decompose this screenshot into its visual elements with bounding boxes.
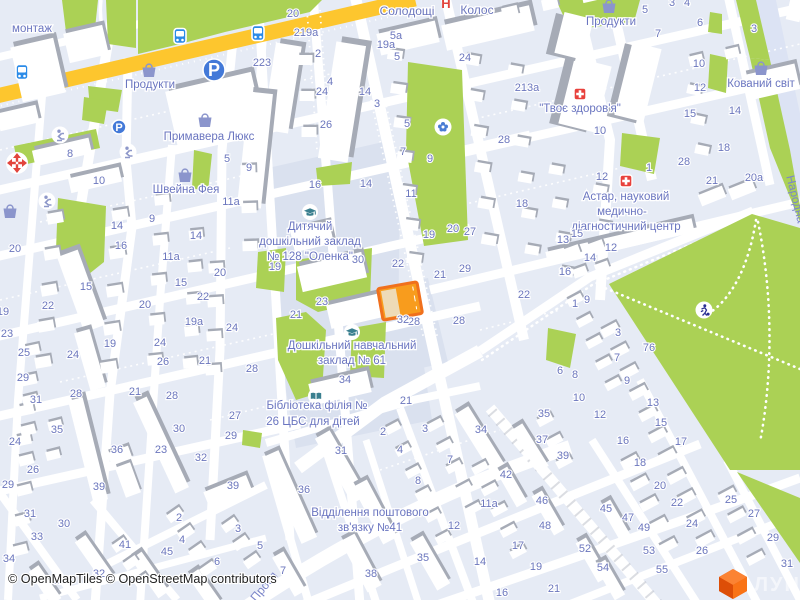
svg-text:медично-: медично- [597, 206, 647, 218]
svg-text:15: 15 [655, 417, 667, 429]
svg-text:20: 20 [9, 243, 21, 255]
svg-text:52: 52 [579, 543, 591, 555]
svg-text:24: 24 [9, 436, 21, 448]
svg-text:9: 9 [624, 375, 630, 387]
svg-text:12: 12 [694, 82, 706, 94]
svg-text:27: 27 [748, 508, 760, 520]
svg-text:9: 9 [149, 213, 155, 225]
svg-text:12: 12 [448, 520, 460, 532]
svg-text:3: 3 [374, 98, 380, 110]
svg-text:30: 30 [58, 518, 70, 530]
svg-text:"Твоє здоров'я": "Твоє здоров'я" [539, 103, 621, 115]
svg-text:76: 76 [643, 342, 655, 354]
svg-text:20: 20 [139, 299, 151, 311]
svg-text:4: 4 [179, 534, 185, 546]
svg-text:23: 23 [1, 328, 13, 340]
svg-text:35: 35 [417, 552, 429, 564]
svg-text:22: 22 [42, 300, 54, 312]
svg-text:24: 24 [686, 518, 698, 530]
svg-text:6: 6 [697, 17, 703, 29]
svg-text:22: 22 [518, 289, 530, 301]
svg-text:12: 12 [594, 409, 606, 421]
svg-text:Кований світ: Кований світ [727, 78, 795, 90]
svg-text:25: 25 [725, 494, 737, 506]
svg-text:16: 16 [496, 587, 508, 599]
svg-text:23: 23 [316, 296, 328, 308]
svg-text:41: 41 [119, 539, 131, 551]
svg-text:5: 5 [224, 153, 230, 165]
svg-text:10: 10 [573, 392, 585, 404]
svg-text:19: 19 [0, 306, 9, 318]
svg-text:17: 17 [675, 436, 687, 448]
svg-text:19: 19 [104, 338, 116, 350]
svg-text:49: 49 [638, 522, 650, 534]
svg-text:47: 47 [622, 512, 634, 524]
svg-text:26: 26 [696, 545, 708, 557]
svg-text:P: P [115, 122, 122, 134]
svg-text:P: P [208, 60, 220, 80]
svg-text:5: 5 [257, 540, 263, 552]
svg-text:26: 26 [320, 119, 332, 131]
svg-text:54: 54 [597, 562, 609, 574]
svg-text:26: 26 [27, 464, 39, 476]
svg-text:20: 20 [654, 480, 666, 492]
svg-text:8: 8 [572, 369, 578, 381]
svg-text:11a: 11a [222, 196, 240, 208]
svg-text:27: 27 [464, 226, 476, 238]
svg-text:3: 3 [615, 327, 621, 339]
svg-text:зв'язку №41: зв'язку №41 [338, 522, 402, 534]
svg-text:28: 28 [70, 388, 82, 400]
svg-text:Швейна Фея: Швейна Фея [153, 184, 220, 196]
svg-text:Продукти: Продукти [125, 79, 175, 91]
svg-text:Відділення поштового: Відділення поштового [311, 507, 429, 519]
svg-text:29: 29 [767, 532, 779, 544]
svg-text:15: 15 [684, 108, 696, 120]
svg-text:24: 24 [154, 337, 166, 349]
svg-text:20: 20 [447, 223, 459, 235]
svg-text:22: 22 [392, 258, 404, 270]
svg-text:30: 30 [352, 254, 364, 266]
svg-text:заклад № 61: заклад № 61 [318, 355, 386, 367]
svg-text:9: 9 [584, 294, 590, 306]
svg-text:26 ЦБС для дітей: 26 ЦБС для дітей [266, 416, 359, 428]
svg-text:21: 21 [434, 269, 446, 281]
svg-text:3: 3 [751, 23, 757, 35]
svg-text:11a: 11a [480, 498, 498, 510]
svg-text:28: 28 [453, 315, 465, 327]
svg-text:1: 1 [572, 298, 578, 310]
svg-text:28: 28 [408, 316, 420, 328]
svg-text:24: 24 [459, 52, 471, 64]
svg-text:2: 2 [380, 426, 386, 438]
svg-text:14: 14 [474, 556, 486, 568]
svg-text:5: 5 [642, 4, 648, 16]
svg-text:15: 15 [175, 277, 187, 289]
svg-text:17: 17 [512, 540, 524, 552]
svg-text:Астар, науковий: Астар, науковий [583, 191, 670, 203]
svg-text:7: 7 [400, 146, 406, 158]
svg-text:29: 29 [17, 372, 29, 384]
svg-text:36: 36 [298, 484, 310, 496]
svg-text:5: 5 [394, 51, 400, 63]
svg-text:11: 11 [405, 188, 416, 200]
svg-text:213a: 213a [515, 82, 540, 94]
svg-text:32: 32 [195, 452, 207, 464]
svg-text:дошкільний заклад: дошкільний заклад [259, 236, 361, 248]
svg-text:3: 3 [669, 0, 675, 9]
svg-text:2: 2 [176, 512, 182, 524]
svg-text:29: 29 [2, 479, 14, 491]
svg-text:8: 8 [415, 475, 421, 487]
svg-text:31: 31 [781, 558, 793, 570]
svg-text:14: 14 [584, 252, 596, 264]
svg-text:45: 45 [161, 546, 173, 558]
svg-text:2: 2 [315, 48, 321, 60]
svg-text:21: 21 [548, 583, 560, 595]
svg-text:31: 31 [24, 508, 36, 520]
svg-text:24: 24 [226, 322, 238, 334]
svg-text:7: 7 [614, 352, 620, 364]
svg-text:34: 34 [339, 374, 351, 386]
svg-text:18: 18 [718, 142, 730, 154]
svg-text:48: 48 [539, 520, 551, 532]
svg-text:7: 7 [280, 565, 286, 577]
svg-text:32: 32 [397, 314, 409, 326]
svg-text:22: 22 [671, 497, 683, 509]
svg-text:діагностичний центр: діагностичний центр [571, 221, 680, 233]
svg-text:28: 28 [166, 390, 178, 402]
svg-text:3: 3 [422, 423, 428, 435]
svg-text:28: 28 [678, 156, 690, 168]
svg-text:36: 36 [111, 444, 123, 456]
svg-text:15: 15 [571, 228, 583, 240]
svg-text:33: 33 [31, 531, 43, 543]
svg-text:7: 7 [447, 454, 453, 466]
svg-text:30: 30 [173, 423, 185, 435]
svg-text:10: 10 [693, 58, 705, 70]
svg-text:37: 37 [536, 434, 548, 446]
svg-text:9: 9 [246, 162, 252, 174]
svg-text:46: 46 [536, 495, 548, 507]
svg-text:15: 15 [80, 281, 92, 293]
svg-text:14: 14 [359, 86, 371, 98]
svg-text:9: 9 [427, 153, 433, 165]
svg-text:21: 21 [400, 395, 412, 407]
svg-text:8: 8 [67, 148, 73, 160]
svg-text:14: 14 [190, 230, 202, 242]
svg-text:53: 53 [643, 545, 655, 557]
svg-text:Колос: Колос [460, 3, 493, 17]
svg-text:12: 12 [596, 171, 608, 183]
svg-text:21: 21 [199, 355, 211, 367]
svg-text:21: 21 [706, 175, 718, 187]
svg-text:10: 10 [594, 125, 606, 137]
svg-text:16: 16 [617, 435, 629, 447]
svg-text:20: 20 [287, 8, 299, 20]
svg-text:14: 14 [729, 105, 741, 117]
svg-text:19: 19 [269, 261, 281, 273]
svg-text:21: 21 [129, 386, 141, 398]
svg-text:14: 14 [360, 178, 372, 190]
svg-text:13: 13 [557, 234, 569, 246]
svg-text:31: 31 [335, 445, 347, 457]
svg-text:13: 13 [647, 397, 659, 409]
svg-text:Примавера Люкс: Примавера Люкс [164, 131, 255, 143]
svg-text:1: 1 [646, 162, 652, 174]
svg-text:7: 7 [655, 28, 661, 40]
svg-text:16: 16 [115, 240, 127, 252]
svg-text:38: 38 [365, 568, 377, 580]
svg-text:14: 14 [111, 220, 123, 232]
svg-text:16: 16 [559, 266, 571, 278]
svg-text:29: 29 [459, 263, 471, 275]
svg-text:45: 45 [600, 503, 612, 515]
svg-text:223: 223 [253, 57, 271, 69]
svg-text:Бібліотека філія №: Бібліотека філія № [266, 400, 367, 412]
svg-text:39: 39 [93, 481, 105, 493]
svg-text:4: 4 [684, 0, 690, 9]
svg-text:Дитячий: Дитячий [288, 221, 333, 233]
svg-text:монтаж: монтаж [12, 23, 52, 35]
svg-text:28: 28 [246, 363, 258, 375]
svg-text:Солодощі: Солодощі [380, 4, 435, 18]
svg-text:34: 34 [475, 424, 487, 436]
svg-text:23: 23 [155, 444, 167, 456]
svg-text:34: 34 [3, 553, 15, 565]
svg-text:31: 31 [30, 394, 42, 406]
svg-text:25: 25 [18, 347, 30, 359]
svg-text:19a: 19a [185, 316, 204, 328]
svg-text:20a: 20a [745, 172, 764, 184]
svg-text:3: 3 [235, 523, 241, 535]
svg-text:219a: 219a [294, 27, 319, 39]
svg-text:24: 24 [316, 86, 328, 98]
svg-text:26: 26 [157, 356, 169, 368]
svg-text:28: 28 [498, 134, 510, 146]
svg-text:16: 16 [309, 179, 321, 191]
svg-text:29: 29 [225, 430, 237, 442]
svg-text:39: 39 [227, 480, 239, 492]
svg-text:6: 6 [214, 556, 220, 568]
svg-text:11a: 11a [162, 251, 180, 263]
svg-text:© OpenMapTiles © OpenStreetMap: © OpenMapTiles © OpenStreetMap contribut… [8, 572, 277, 586]
svg-text:10: 10 [93, 175, 105, 187]
svg-text:5: 5 [404, 118, 410, 130]
svg-text:ЛУН: ЛУН [754, 574, 800, 596]
svg-text:24: 24 [67, 349, 79, 361]
svg-text:H: H [441, 0, 450, 11]
svg-text:6: 6 [557, 365, 563, 377]
svg-text:20: 20 [214, 267, 226, 279]
svg-text:21: 21 [290, 309, 302, 321]
svg-text:35: 35 [51, 424, 63, 436]
svg-text:27: 27 [229, 410, 241, 422]
svg-text:55: 55 [656, 564, 668, 576]
svg-text:19a: 19a [377, 39, 396, 51]
svg-text:Продукти: Продукти [586, 16, 636, 28]
svg-text:35: 35 [538, 408, 550, 420]
svg-text:18: 18 [634, 457, 646, 469]
svg-text:19: 19 [423, 229, 435, 241]
svg-text:39: 39 [557, 450, 569, 462]
svg-text:4: 4 [397, 444, 403, 456]
svg-text:12: 12 [605, 242, 617, 254]
svg-text:Дошкільний навчальний: Дошкільний навчальний [288, 340, 417, 352]
svg-text:19: 19 [530, 561, 542, 573]
svg-text:42: 42 [500, 469, 512, 481]
svg-text:22: 22 [197, 291, 209, 303]
svg-text:18: 18 [516, 198, 528, 210]
